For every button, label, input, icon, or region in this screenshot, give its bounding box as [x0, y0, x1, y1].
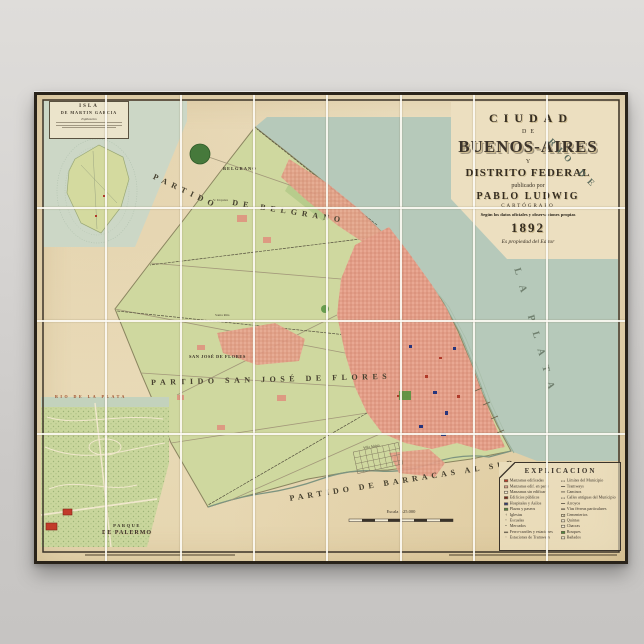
- tram-station-icon: ◦: [504, 537, 508, 540]
- legend-title: EXPLICACION: [504, 467, 617, 475]
- fold-line-vertical: [253, 95, 255, 561]
- palermo-building2: [46, 523, 57, 530]
- legend-item: Calles antiguas del Municipio: [561, 495, 618, 501]
- swatch-cemetery: [561, 514, 565, 517]
- legend-item-label: Vías férreas particulares: [566, 507, 606, 511]
- legend-item: ◦Estaciones de Tramways: [504, 535, 561, 541]
- swatch-hospital: [504, 502, 508, 505]
- isla-microtext: [56, 125, 122, 126]
- title-year: 1892: [511, 220, 545, 236]
- title-buenos-aires: BUENOS-AIRES: [458, 137, 598, 157]
- legend-item-label: Edificios públicos: [510, 496, 540, 500]
- legend-right-column: Límites del Municipio Tramways Caminos C…: [561, 478, 618, 541]
- legend-item-label: Caminos: [566, 490, 581, 494]
- legend-item-label: Manzanas edificadas: [510, 479, 544, 483]
- legend-item-label: Plazas y paseos: [510, 507, 535, 511]
- legend-item-label: Chacras: [566, 524, 579, 528]
- swatch-private-rail: [561, 509, 565, 510]
- isla-subtitle: DE MARTIN GARCIA: [50, 110, 128, 115]
- chacarita-cemetery: [190, 144, 210, 164]
- legend-item-label: Bañados: [566, 536, 580, 540]
- fold-line-vertical: [473, 95, 475, 561]
- fold-line-vertical: [326, 95, 328, 561]
- fold-line-vertical: [180, 95, 182, 561]
- isla-microtext: [62, 127, 116, 128]
- legend-item-label: Escuelas: [510, 519, 524, 523]
- legend-item-label: Estaciones de Tramways: [510, 536, 550, 540]
- fold-line-horizontal: [37, 433, 625, 435]
- swatch-empty-block: [504, 491, 508, 494]
- legend-item-label: Iglesias: [510, 513, 522, 517]
- legend-item-label: Tramways: [566, 485, 583, 489]
- swatch-woods: [561, 531, 565, 534]
- label-belgrano-town: BELGRANO: [223, 167, 257, 172]
- legend-item: Bañados: [561, 535, 618, 541]
- swatch-quinta: [561, 519, 565, 522]
- isla-inset-titlebox: ISLA DE MARTIN GARCIA Explicacion: [49, 101, 129, 139]
- fold-line-horizontal: [37, 320, 625, 322]
- swatch-marsh: [561, 537, 565, 540]
- legend-item-label: Manzanas edif. en parte: [510, 485, 549, 489]
- swatch-old-street: [561, 498, 565, 499]
- market-square-icon: ▪: [504, 525, 508, 528]
- fold-line-vertical: [400, 95, 402, 561]
- map-poster: CIUDAD DE BUENOS-AIRES Y DISTRITO FEDERA…: [34, 92, 628, 564]
- legend-item-label: Cementerios: [566, 513, 587, 517]
- legend-left-column: Manzanas edificadas Manzanas edif. en pa…: [504, 478, 561, 541]
- legend-item-label: Arroyos: [566, 502, 579, 506]
- imprint-left: [85, 554, 235, 556]
- swatch-road: [561, 492, 565, 493]
- label-santa-rita: Santa Rita: [215, 314, 229, 318]
- title-publicado: publicado por: [511, 183, 544, 189]
- legend-item-label: Bosques: [566, 530, 580, 534]
- swatch-public-building: [504, 497, 508, 500]
- swatch-railway: [504, 532, 508, 533]
- title-de: DE: [518, 129, 538, 135]
- legend-item-label: Hospitales y Asilos: [510, 502, 542, 506]
- label-flores-town: SAN JOSÉ DE FLORES: [189, 355, 246, 360]
- title-pablo-ludwig: PABLO LUDWIG: [477, 191, 580, 202]
- swatch-plaza: [504, 508, 508, 511]
- isla-note: Explicacion: [50, 117, 128, 121]
- legend-item-label: Calles antiguas del Municipio: [566, 496, 615, 500]
- legend-item-label: Quintas: [566, 519, 579, 523]
- swatch-municipal-limit: [561, 481, 565, 482]
- swatch-built-block: [504, 479, 508, 482]
- legend-item-label: Manzanas sin edificar: [510, 490, 546, 494]
- legend-item: Ferro-carriles y estaciones: [504, 529, 561, 535]
- swatch-chacra: [561, 525, 565, 528]
- church-cross-icon: †: [504, 514, 508, 517]
- fold-line-vertical: [105, 95, 107, 561]
- fold-line-vertical: [546, 95, 548, 561]
- palermo-building: [63, 509, 72, 515]
- title-y: Y: [526, 159, 530, 165]
- label-villa-urquiza: V. Urquiza: [213, 199, 228, 203]
- fold-line-horizontal: [37, 207, 625, 209]
- swatch-partial-block: [504, 485, 508, 488]
- legend-box: EXPLICACION Manzanas edificadas Manzanas…: [499, 462, 621, 551]
- swatch-tramway-line: [561, 486, 565, 487]
- swatch-stream: [561, 503, 565, 504]
- legend-item-label: Mercados: [510, 524, 526, 528]
- isla-title: ISLA: [50, 104, 128, 109]
- school-dot-icon: •: [504, 519, 508, 522]
- isla-microtext: [56, 122, 122, 123]
- wall-background: CIUDAD DE BUENOS-AIRES Y DISTRITO FEDERA…: [0, 0, 644, 644]
- title-ciudad: CIUDAD: [483, 111, 573, 126]
- title-segun: Según los datos oficiales y observacione…: [481, 212, 576, 217]
- legend-item-label: Límites del Municipio: [566, 479, 602, 483]
- palermo-river-label: RIO DE LA PLATA: [55, 394, 127, 399]
